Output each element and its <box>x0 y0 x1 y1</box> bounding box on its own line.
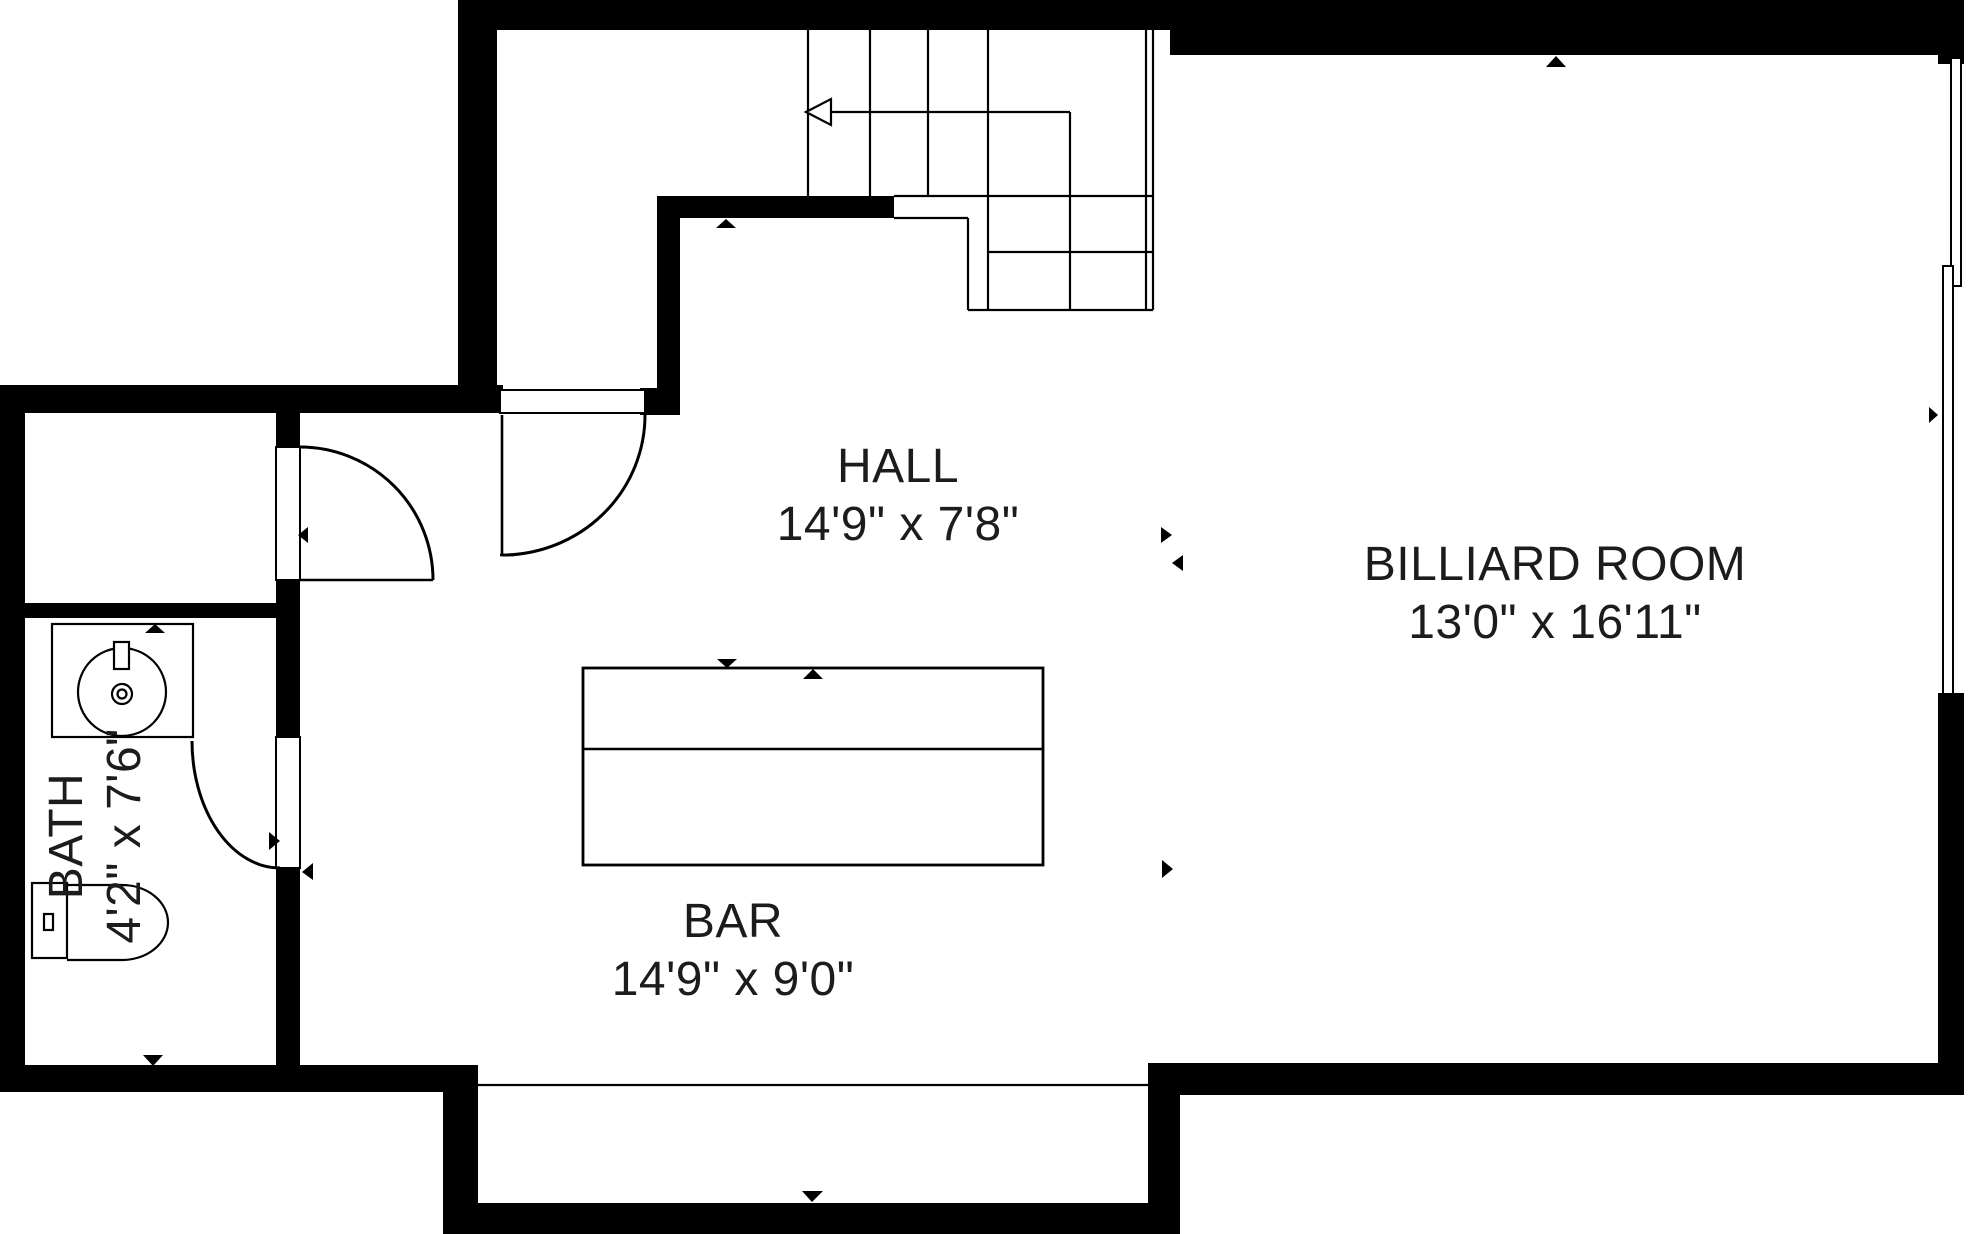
arrow-billiard-to-hall <box>1172 555 1183 571</box>
room-dimensions: 4'2" x 7'6" <box>96 728 154 943</box>
closet-door-opening <box>276 447 300 580</box>
wall-top-hall <box>458 0 1170 30</box>
room-name: BILLIARD ROOM <box>1364 536 1747 594</box>
bath-door-swing-arc <box>192 741 280 868</box>
arrow-hall-to-billiard <box>1161 527 1172 543</box>
bar-counter-outline <box>583 668 1043 865</box>
wall-interior-vertical-c <box>276 868 300 1067</box>
wall-top-billiard <box>1170 0 1964 55</box>
room-dimensions: 13'0" x 16'11" <box>1364 594 1747 652</box>
arrow-bump-bottom <box>802 1191 823 1202</box>
room-dimensions: 14'9" x 9'0" <box>612 951 855 1009</box>
room-label-bar: BAR 14'9" x 9'0" <box>612 893 855 1009</box>
doors <box>192 390 645 868</box>
room-name: HALL <box>777 438 1020 496</box>
window-right-upper <box>1951 58 1961 286</box>
hall-door-opening <box>500 390 645 413</box>
stair-direction-arrowhead <box>806 99 831 125</box>
arrow-bath-door-lower <box>302 863 313 880</box>
wall-hall-interior-vertical <box>657 196 680 415</box>
wall-hall-left-vertical <box>458 0 497 413</box>
room-name: BAR <box>612 893 855 951</box>
sink-drain-outer <box>112 684 132 704</box>
wall-interior-vertical-b <box>276 580 300 737</box>
bath-door-opening <box>276 737 300 868</box>
room-name: BATH <box>38 728 96 943</box>
wall-bath-bottom <box>0 1065 478 1092</box>
window-right-lower <box>1943 266 1953 694</box>
wall-closet-bath-divider <box>0 603 298 618</box>
bar-counter <box>583 668 1043 865</box>
room-label-billiard: BILLIARD ROOM 13'0" x 16'11" <box>1364 536 1747 652</box>
windows <box>1943 58 1961 694</box>
wall-left-outer <box>0 385 25 1092</box>
wall-interior-vertical-a <box>276 413 300 447</box>
staircase <box>806 30 1153 310</box>
floorplan-canvas: HALL 14'9" x 7'8" BILLIARD ROOM 13'0" x … <box>0 0 1971 1234</box>
wall-right-outer-lower <box>1938 693 1964 1095</box>
wall-under-stairs <box>680 196 894 218</box>
arrow-bath-bottom <box>143 1055 163 1066</box>
wall-bump-bottom <box>443 1203 1180 1234</box>
hall-door-swing-arc <box>502 415 645 555</box>
arrow-bath-top <box>145 624 165 633</box>
arrow-bar-to-billiard <box>1162 860 1173 878</box>
sink-faucet <box>114 642 129 669</box>
arrow-billiard-top <box>1546 56 1566 67</box>
wall-upper-left-horizontal <box>0 385 503 413</box>
sink-drain-inner <box>118 690 127 699</box>
room-dimensions: 14'9" x 7'8" <box>777 496 1020 554</box>
room-label-bath: BATH 4'2" x 7'6" <box>38 728 154 943</box>
arrow-stairs-to-hall <box>716 219 736 228</box>
room-label-hall: HALL 14'9" x 7'8" <box>777 438 1020 554</box>
wall-billiard-bottom <box>1148 1063 1964 1095</box>
closet-door-swing-arc <box>300 447 433 580</box>
arrow-right-wall <box>1929 407 1938 423</box>
